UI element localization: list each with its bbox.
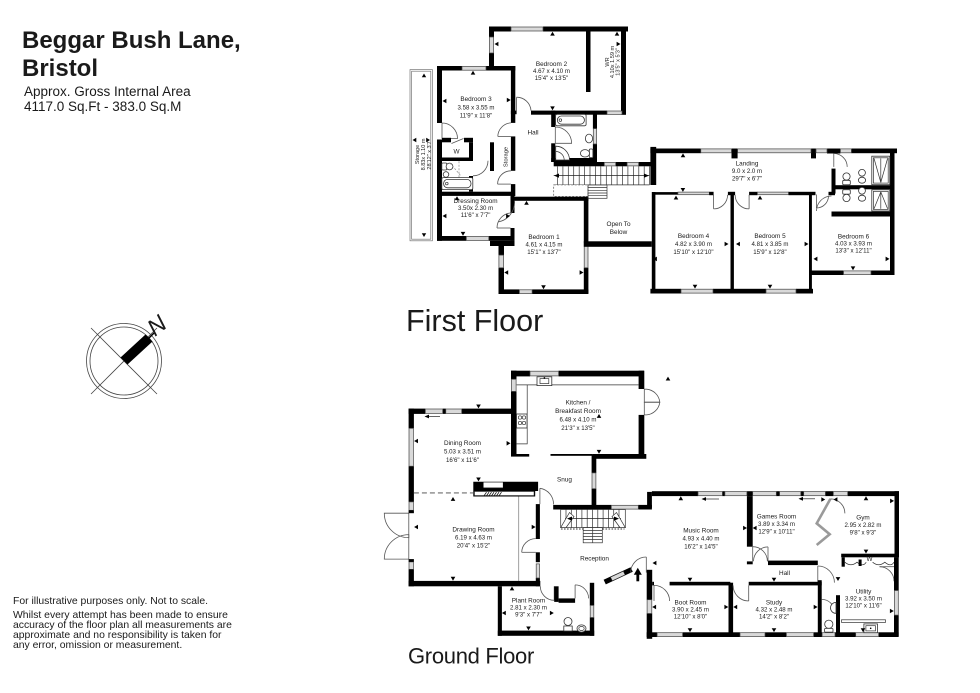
svg-text:3.90 x 2.45 m: 3.90 x 2.45 m — [672, 607, 709, 614]
svg-text:4.61 x 4.15 m: 4.61 x 4.15 m — [526, 241, 563, 248]
svg-text:14'2" x 8'2": 14'2" x 8'2" — [759, 614, 789, 621]
svg-text:Storage: Storage — [504, 147, 510, 167]
svg-text:12'10" x 8'0": 12'10" x 8'0" — [674, 614, 707, 621]
svg-text:Bedroom 1: Bedroom 1 — [528, 234, 560, 241]
svg-text:Study: Study — [766, 600, 783, 607]
svg-text:6.19 x 4.63 m: 6.19 x 4.63 m — [455, 535, 492, 542]
svg-text:3.50x 2.30 m: 3.50x 2.30 m — [458, 205, 493, 212]
svg-text:Bedroom 3: Bedroom 3 — [460, 96, 492, 103]
svg-text:4.93 x 4.40 m: 4.93 x 4.40 m — [683, 536, 720, 543]
svg-text:2.81 x 2.30 m: 2.81 x 2.30 m — [510, 605, 547, 612]
svg-text:15'10" x 12'10": 15'10" x 12'10" — [673, 249, 713, 256]
svg-text:21'3" x 13'5": 21'3" x 13'5" — [561, 425, 594, 432]
svg-text:9'3" x 7'7": 9'3" x 7'7" — [515, 612, 542, 619]
svg-text:16'2" x 14'5": 16'2" x 14'5" — [684, 544, 717, 551]
svg-text:W: W — [866, 556, 873, 563]
svg-text:Reception: Reception — [580, 556, 609, 563]
svg-text:15'4" x 13'5": 15'4" x 13'5" — [535, 75, 568, 82]
svg-text:First Floor: First Floor — [406, 304, 543, 338]
svg-text:Kitchen /: Kitchen / — [566, 400, 591, 407]
svg-text:Below: Below — [610, 229, 628, 236]
svg-text:Open To: Open To — [606, 221, 630, 228]
svg-text:4.82 x 3.90 m: 4.82 x 3.90 m — [675, 241, 712, 248]
svg-text:3.58 x 3.55 m: 3.58 x 3.55 m — [458, 104, 495, 111]
svg-text:Beggar Bush Lane,: Beggar Bush Lane, — [22, 27, 241, 54]
svg-text:Gym: Gym — [856, 515, 870, 522]
svg-text:Bedroom 4: Bedroom 4 — [678, 233, 710, 240]
svg-text:Hall: Hall — [527, 130, 538, 137]
svg-text:Music Room: Music Room — [683, 528, 719, 535]
svg-text:9.0 x 2.0 m: 9.0 x 2.0 m — [732, 168, 762, 175]
svg-text:11'6" x 7'7": 11'6" x 7'7" — [461, 212, 491, 219]
svg-text:2.95 x 2.82 m: 2.95 x 2.82 m — [845, 522, 882, 529]
svg-text:4.81 x 3.85 m: 4.81 x 3.85 m — [752, 241, 789, 248]
svg-text:Utility: Utility — [856, 589, 872, 596]
svg-text:9'8" x 9'3": 9'8" x 9'3" — [850, 530, 877, 537]
svg-text:Drawing Room: Drawing Room — [452, 527, 494, 534]
svg-text:Bristol: Bristol — [22, 55, 98, 82]
svg-text:For illustrative purposes only: For illustrative purposes only. Not to s… — [13, 596, 208, 607]
svg-text:15'9" x 12'8": 15'9" x 12'8" — [753, 249, 786, 256]
svg-text:Ground Floor: Ground Floor — [408, 644, 534, 669]
svg-text:3.89 x 3.34 m: 3.89 x 3.34 m — [758, 521, 795, 528]
svg-text:4.32 x 2.48 m: 4.32 x 2.48 m — [756, 607, 793, 614]
svg-text:5.03 x 3.51 m: 5.03 x 3.51 m — [444, 449, 481, 456]
svg-text:Dressing Room: Dressing Room — [454, 198, 498, 205]
svg-text:Games Room: Games Room — [757, 514, 796, 521]
svg-text:Hall: Hall — [779, 570, 790, 577]
svg-text:6.48 x 4.10 m: 6.48 x 4.10 m — [560, 417, 597, 424]
svg-text:4117.0 Sq.Ft - 383.0 Sq.M: 4117.0 Sq.Ft - 383.0 Sq.M — [24, 99, 181, 114]
svg-text:Bedroom 5: Bedroom 5 — [754, 233, 786, 240]
svg-text:Plant Room: Plant Room — [512, 598, 545, 605]
svg-text:Boot Room: Boot Room — [675, 600, 707, 607]
svg-text:Dining Room: Dining Room — [444, 440, 481, 447]
svg-text:29'7" x 6'7": 29'7" x 6'7" — [732, 176, 762, 183]
svg-text:W: W — [453, 149, 460, 156]
svg-text:13'5" x 5'3": 13'5" x 5'3" — [615, 48, 621, 76]
svg-text:Bedroom 6: Bedroom 6 — [838, 234, 870, 241]
svg-text:4.03 x 3.93 m: 4.03 x 3.93 m — [835, 241, 872, 248]
svg-text:12'9" x 10'11": 12'9" x 10'11" — [758, 529, 794, 536]
svg-text:13'3" x 12'11": 13'3" x 12'11" — [835, 248, 871, 255]
svg-text:Snug: Snug — [557, 477, 572, 484]
svg-text:16'6" x 11'6": 16'6" x 11'6" — [446, 457, 479, 464]
svg-text:15'1" x 13'7": 15'1" x 13'7" — [527, 249, 560, 256]
svg-text:28'12" x 3'7": 28'12" x 3'7" — [427, 139, 433, 169]
svg-text:11'9" x 11'8": 11'9" x 11'8" — [460, 113, 493, 120]
svg-text:3.92 x 3.50 m: 3.92 x 3.50 m — [845, 596, 882, 603]
svg-text:Approx. Gross Internal Area: Approx. Gross Internal Area — [24, 84, 191, 99]
svg-text:20'4" x 15'2": 20'4" x 15'2" — [457, 543, 490, 550]
svg-text:Breakfast Room: Breakfast Room — [555, 408, 601, 415]
svg-text:any error, omission or measure: any error, omission or measurement. — [13, 640, 182, 651]
svg-text:12'10" x 11'6": 12'10" x 11'6" — [845, 603, 881, 610]
svg-text:Landing: Landing — [736, 161, 759, 168]
